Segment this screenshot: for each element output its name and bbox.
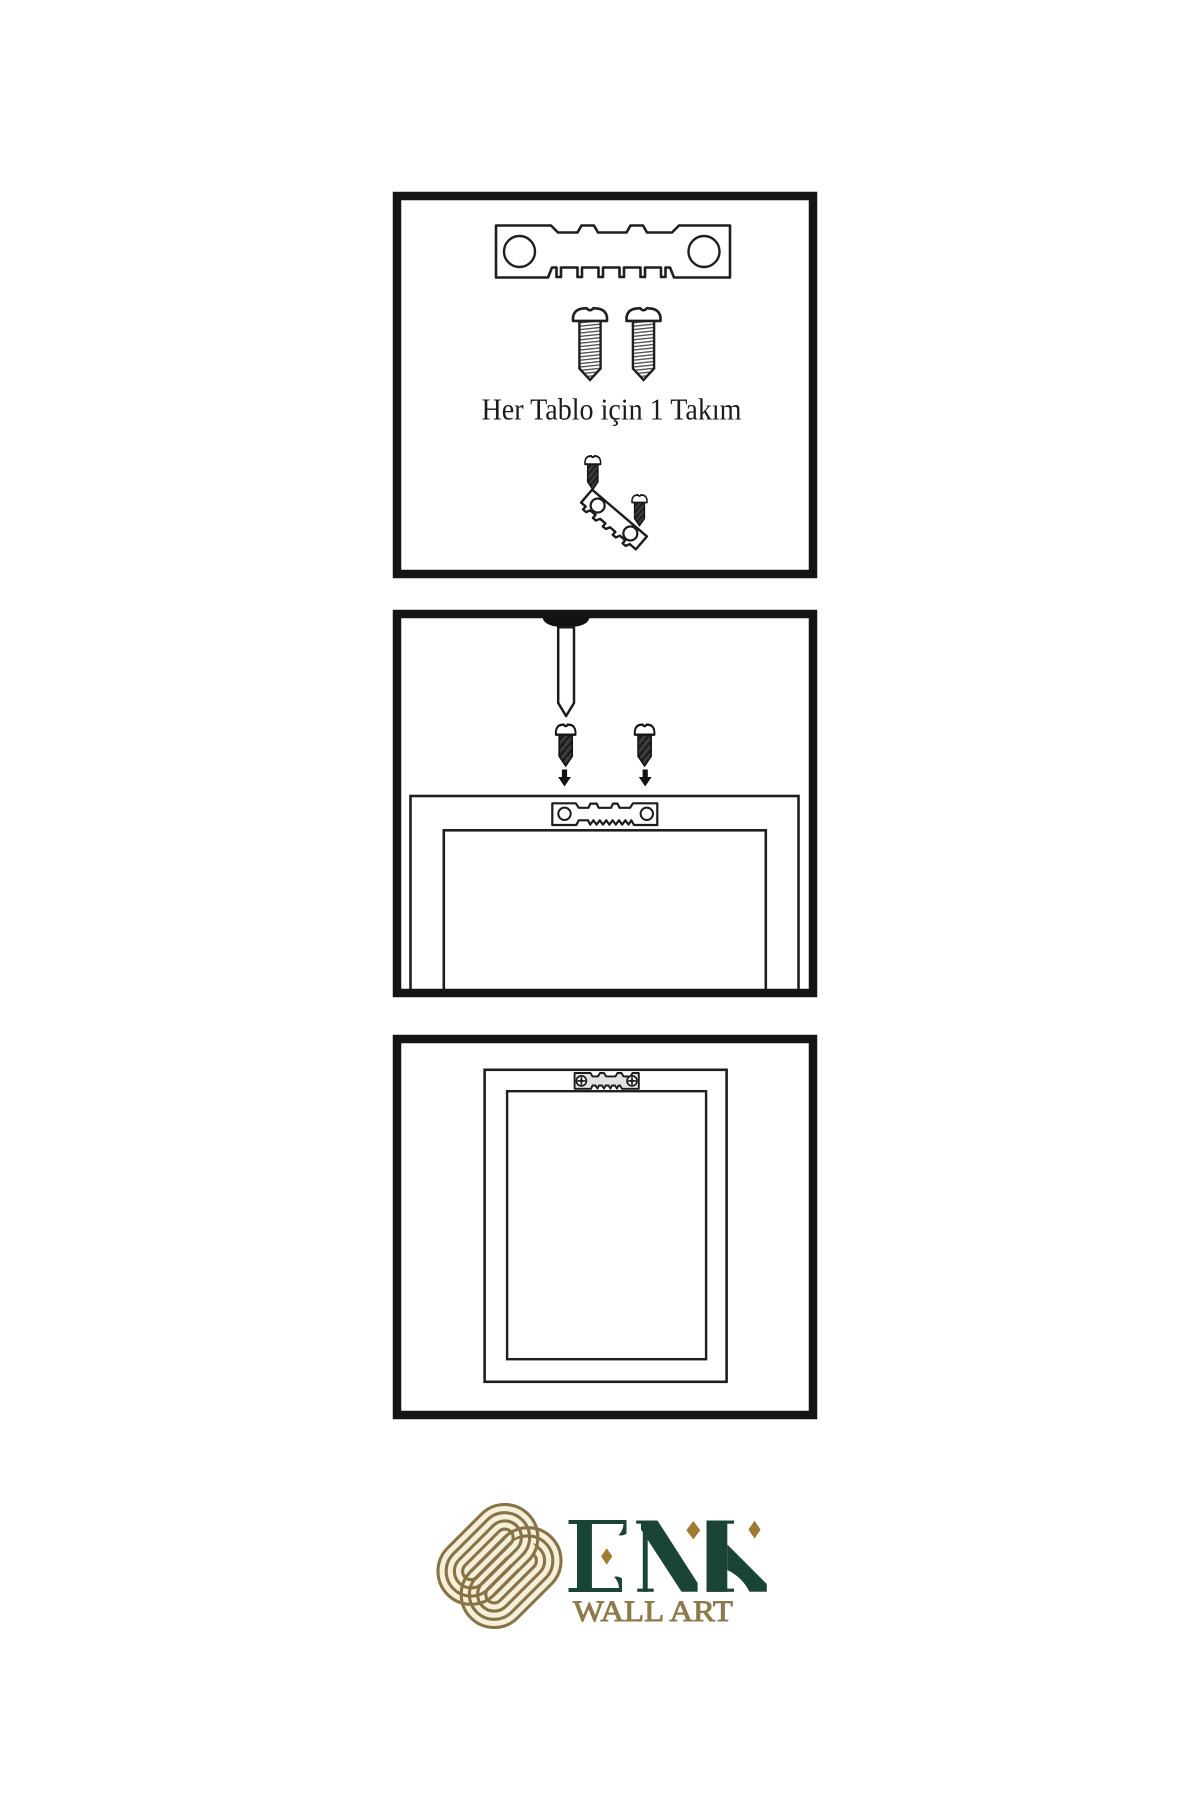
svg-text:Her Tablo için 1 Takım: Her Tablo için 1 Takım [482,392,742,427]
svg-text:WALL ART: WALL ART [573,1595,733,1628]
